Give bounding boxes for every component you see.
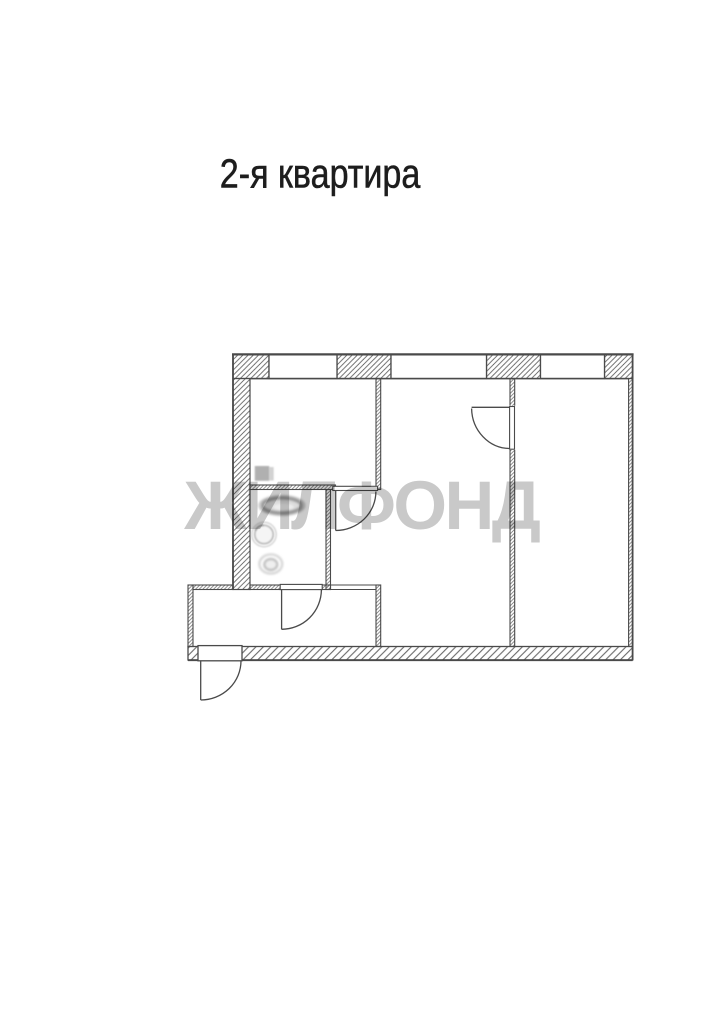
svg-text:ЖИЛФОНД: ЖИЛФОНД bbox=[183, 467, 539, 544]
svg-text:2-я квартира: 2-я квартира bbox=[220, 150, 421, 196]
